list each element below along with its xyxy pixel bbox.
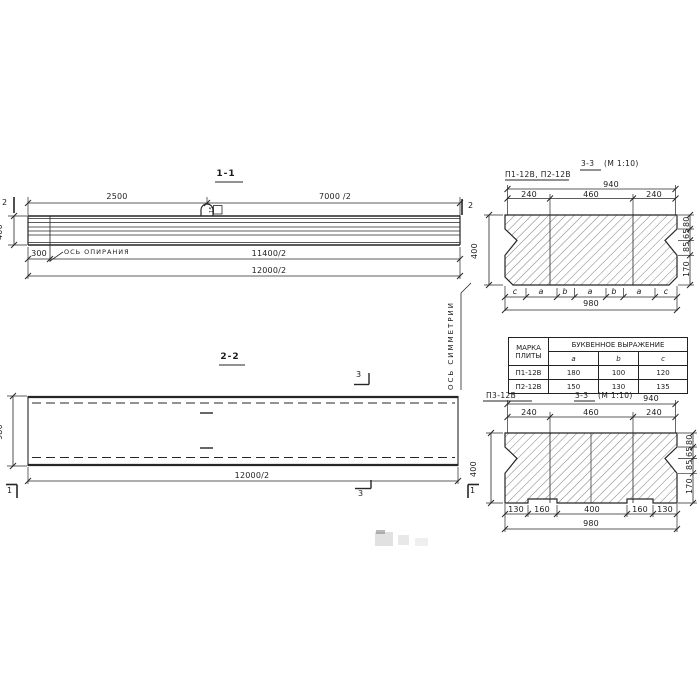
plate-spec-table: МАРКА ПЛИТЫ БУКВЕННОЕ ВЫРАЖЕНИЕ a b c П1… (508, 337, 688, 394)
dim-400-center: 400 (581, 505, 603, 514)
dim-2500: 2500 (92, 192, 142, 201)
dim-400-left: 400 (0, 224, 4, 240)
header-letters-cell: БУКВЕННОЕ ВЫРАЖЕНИЕ (549, 338, 688, 352)
section-2-2-title: 2-2 (216, 353, 244, 362)
dim-130-left: 130 (505, 505, 527, 514)
plate-mark-bottom: П3-12В (486, 391, 516, 400)
dim-80-top: 80 (682, 216, 691, 227)
dim-240-top-left: 240 (514, 190, 544, 199)
header-mark-cell: МАРКА ПЛИТЫ (509, 338, 549, 366)
dim-460-bottom: 460 (576, 408, 606, 417)
blueprint-canvas: 1-1 2500 7000 /2 2 2 400 300 ОСЬ ОПИРАНИ… (0, 0, 700, 700)
section-3-3-scale-top: (М 1:10) (604, 159, 639, 168)
dim-240-bottom-right: 240 (639, 408, 669, 417)
dim-65-top: 65 (682, 228, 691, 239)
support-axis-label: ОСЬ ОПИРАНИЯ (64, 248, 130, 257)
col-header-a: a (549, 352, 599, 366)
dim-460-top: 460 (576, 190, 606, 199)
dim-400-bottom-left: 400 (469, 461, 478, 477)
table-row: П1-12В 180 100 120 (509, 366, 688, 380)
cut-mark-2-right: 2 (468, 201, 473, 210)
dim-980-bottom: 980 (576, 519, 606, 528)
cut-mark-1-right: 1 (470, 486, 475, 495)
dim-160-left: 160 (531, 505, 553, 514)
dim-940-top: 940 (596, 180, 626, 189)
cut-mark-3-top: 3 (356, 370, 361, 379)
dim-170-top: 170 (682, 261, 691, 277)
cut-mark-1-left: 1 (7, 486, 12, 495)
letter-c-1: c (510, 287, 520, 296)
row1-b: 100 (599, 366, 639, 380)
dim-130-right: 130 (654, 505, 676, 514)
lifting-loop-tag: 15 (210, 206, 215, 213)
letter-a-2: a (585, 287, 595, 296)
letter-c-2: c (661, 287, 671, 296)
dim-11400-half: 11400/2 (239, 249, 299, 258)
row1-mark: П1-12В (509, 366, 549, 380)
letter-a-3: a (634, 287, 644, 296)
section-3-3-title-top: 3-3 (581, 159, 594, 168)
plate-marks-top: П1-12В, П2-12В (505, 170, 571, 179)
letter-b-1: b (560, 287, 570, 296)
cut-mark-2-left: 2 (2, 198, 7, 207)
row2-a: 150 (549, 380, 599, 394)
header-mark-line2: ПЛИТЫ (509, 352, 548, 360)
scan-smudge-3 (415, 538, 428, 546)
cut-mark-3-bottom: 3 (358, 489, 363, 498)
dim-240-top-right: 240 (639, 190, 669, 199)
symmetry-axis-label: ОСЬ СИММЕТРИИ (447, 301, 456, 390)
dim-940-bottom: 940 (636, 394, 666, 403)
dim-980-left: 980 (0, 424, 4, 440)
scan-smudge-dark (376, 530, 385, 534)
section-3-3-scale-bottom: (М 1:10) (598, 391, 633, 400)
table-row: МАРКА ПЛИТЫ БУКВЕННОЕ ВЫРАЖЕНИЕ (509, 338, 688, 352)
dim-170-bottom: 170 (685, 478, 694, 494)
dim-7000-half: 7000 /2 (310, 192, 360, 201)
dim-65-bottom: 65 (685, 446, 694, 457)
dim-12000-half: 12000/2 (239, 266, 299, 275)
dim-300: 300 (29, 249, 49, 258)
letter-a-1: a (536, 287, 546, 296)
section-3-3-title-bottom: 3-3 (575, 391, 588, 400)
dim-160-right: 160 (629, 505, 651, 514)
dim-85-top: 85 (682, 241, 691, 252)
scan-smudge-2 (398, 535, 409, 545)
letter-b-2: b (609, 287, 619, 296)
dim-85-bottom: 85 (685, 459, 694, 470)
row1-c: 120 (639, 366, 688, 380)
header-mark-line1: МАРКА (509, 344, 548, 352)
dim-240-bottom-left: 240 (514, 408, 544, 417)
dim-400-top: 400 (470, 243, 479, 259)
row2-c: 135 (639, 380, 688, 394)
col-header-c: c (639, 352, 688, 366)
row1-a: 180 (549, 366, 599, 380)
section-1-1-title: 1-1 (212, 170, 240, 179)
dim-12000-half-plan: 12000/2 (222, 471, 282, 480)
dim-980-top: 980 (576, 299, 606, 308)
col-header-b: b (599, 352, 639, 366)
dim-80-bottom: 80 (685, 434, 694, 445)
scan-smudge-1 (375, 532, 393, 546)
